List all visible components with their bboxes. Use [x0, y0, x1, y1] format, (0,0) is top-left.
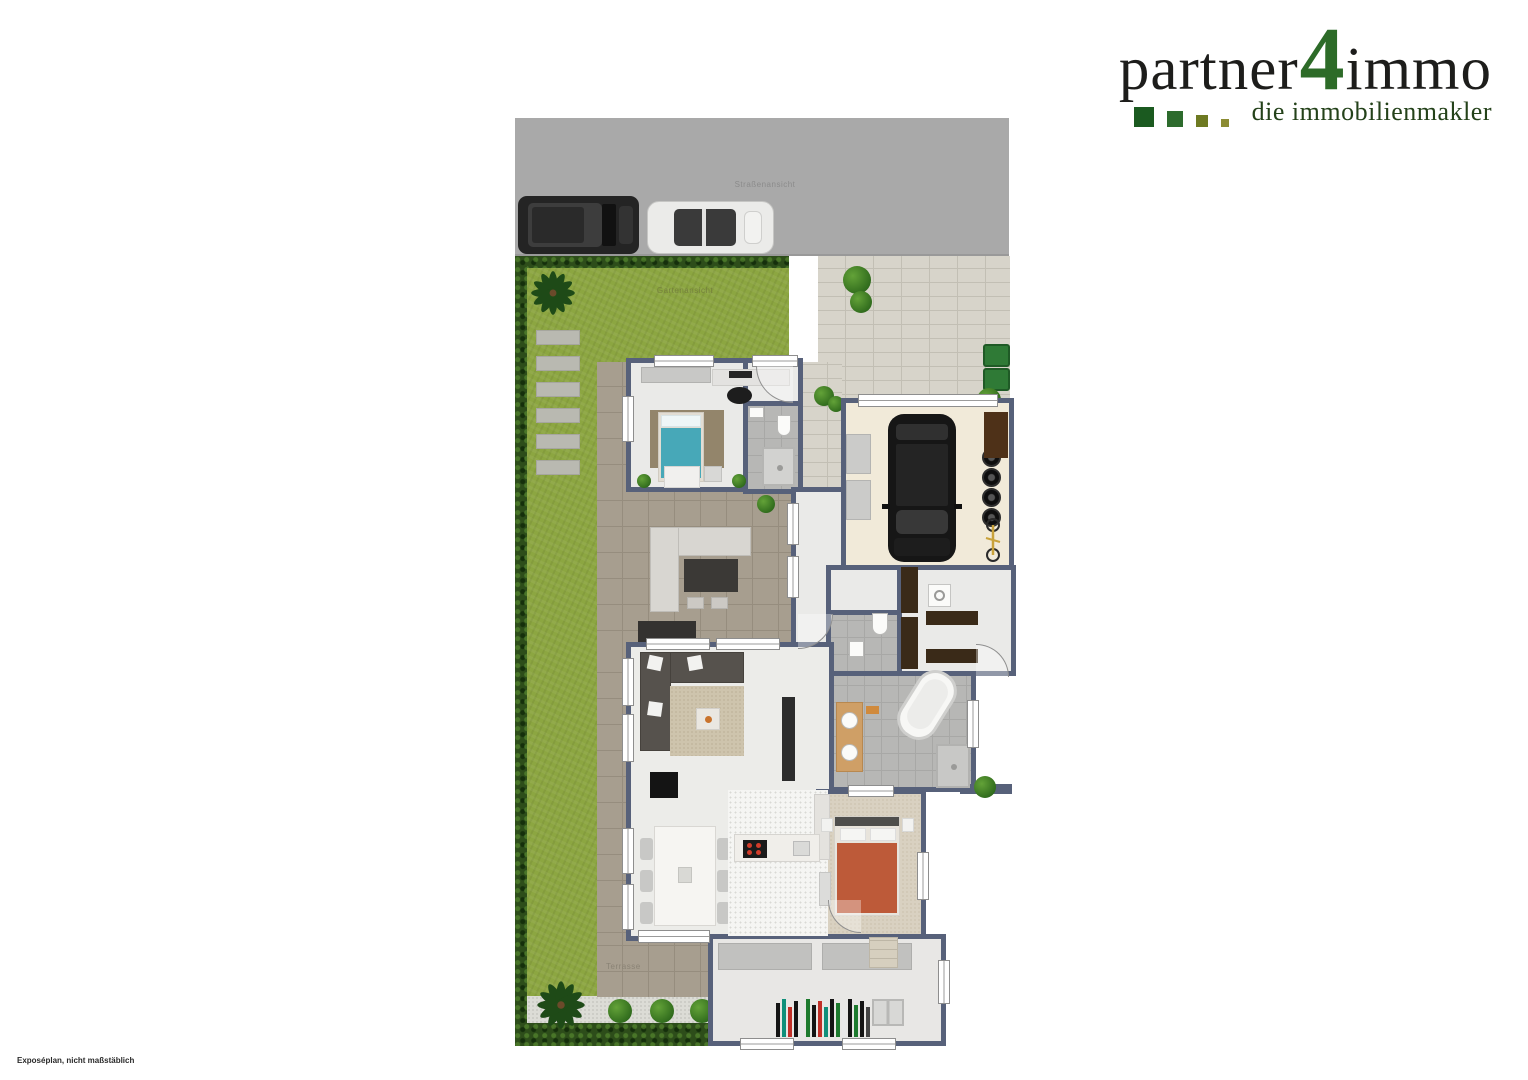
garage-shelf: [846, 480, 871, 520]
hedge-left: [515, 266, 527, 1024]
plant-icon: [637, 474, 651, 488]
tire-stack: [982, 468, 1001, 487]
logo-square-icon: [1221, 119, 1229, 127]
bush-icon: [850, 291, 872, 313]
logo-square-icon: [1134, 107, 1154, 127]
disclaimer-text: Exposéplan, nicht maßstäblich: [17, 1056, 134, 1065]
chair: [640, 902, 653, 924]
window: [848, 785, 894, 797]
sink: [749, 407, 764, 418]
kitchen-island: [734, 834, 820, 862]
toilet: [872, 613, 888, 635]
trash-bin: [983, 344, 1010, 367]
palm-tree-icon: [530, 270, 576, 316]
wardrobe: [901, 617, 918, 669]
brand-name: partner 4 immo: [1120, 24, 1492, 105]
sink: [841, 744, 858, 761]
entry-path-paving: [800, 362, 842, 490]
brand-part1: partner: [1119, 35, 1299, 105]
window: [787, 556, 799, 598]
palm-tree-icon: [536, 980, 586, 1030]
shelf: [782, 697, 795, 781]
logo-square-icon: [1196, 115, 1208, 127]
window: [938, 960, 950, 1004]
chair: [640, 870, 653, 892]
nightstand: [821, 818, 833, 832]
bath-mat: [866, 706, 879, 714]
sideboard: [641, 367, 711, 383]
window: [917, 852, 929, 900]
window: [622, 828, 634, 874]
wardrobe: [901, 567, 918, 613]
garage-car: [888, 414, 956, 562]
workbench: [984, 412, 1008, 458]
window: [787, 503, 799, 545]
bush-icon: [843, 266, 871, 294]
toilet: [777, 415, 791, 436]
outdoor-sofa: [650, 527, 679, 612]
terrace-label: Terrasse: [606, 962, 676, 971]
room-wc: [826, 610, 902, 676]
bush-icon: [974, 776, 996, 798]
window: [622, 884, 634, 930]
garden-label: Gartenansicht: [630, 286, 740, 295]
storage-table: [872, 999, 904, 1026]
room-utility: [826, 565, 902, 615]
logo-square-icon: [1167, 111, 1183, 127]
desk-chair: [727, 387, 752, 404]
outdoor-table: [684, 559, 738, 592]
tire-stack: [982, 488, 1001, 507]
sliding-door: [638, 930, 710, 943]
parked-suv-car: [518, 196, 639, 254]
plant-icon: [732, 474, 746, 488]
bench: [926, 649, 978, 663]
brand-part2: immo: [1346, 35, 1492, 105]
sink: [841, 712, 858, 729]
kitchen-sink: [793, 841, 810, 856]
stepping-stone: [536, 460, 580, 475]
storage-counter: [822, 943, 912, 970]
hedge-top: [515, 256, 789, 268]
pillow: [647, 701, 663, 717]
bush-icon: [650, 999, 674, 1023]
window: [622, 658, 634, 706]
window: [740, 1038, 794, 1050]
shower: [762, 447, 795, 486]
stepping-stone: [536, 382, 580, 397]
stepping-stone: [536, 356, 580, 371]
storage-counter: [718, 943, 812, 970]
shower: [936, 744, 970, 788]
outdoor-stool: [687, 597, 704, 609]
window: [646, 638, 710, 650]
chair: [640, 838, 653, 860]
fireplace: [650, 772, 678, 798]
window: [654, 355, 714, 367]
garage-door: [858, 394, 998, 407]
dining-table: [654, 826, 716, 926]
pillow: [647, 655, 664, 672]
shelf: [869, 937, 898, 968]
bush-icon: [608, 999, 632, 1023]
nightstand: [902, 818, 914, 832]
window: [622, 714, 634, 762]
kitchen-floor: [728, 790, 828, 936]
sink: [849, 641, 864, 657]
company-logo: partner 4 immo die immobilienmakler: [1120, 24, 1492, 127]
pillow: [687, 655, 703, 671]
street-label: Straßenansicht: [700, 180, 830, 189]
dresser: [664, 466, 700, 488]
coffee-table: [696, 708, 720, 730]
stepping-stone: [536, 434, 580, 449]
window: [967, 700, 979, 748]
side-table: [704, 466, 722, 482]
stepping-stone: [536, 408, 580, 423]
outdoor-stool: [711, 597, 728, 609]
parked-white-car: [647, 201, 774, 254]
window: [842, 1038, 896, 1050]
monitor: [729, 371, 752, 378]
logo-tagline: die immobilienmakler: [1242, 97, 1492, 127]
bench: [926, 611, 978, 625]
window: [622, 396, 634, 442]
garage-shelf: [846, 434, 871, 474]
bush-icon: [757, 495, 775, 513]
tool-rack: [776, 995, 872, 1037]
window: [716, 638, 780, 650]
bicycle-icon: [982, 516, 1004, 564]
brand-number: 4: [1300, 24, 1345, 96]
washing-machine: [928, 584, 951, 607]
stepping-stone: [536, 330, 580, 345]
